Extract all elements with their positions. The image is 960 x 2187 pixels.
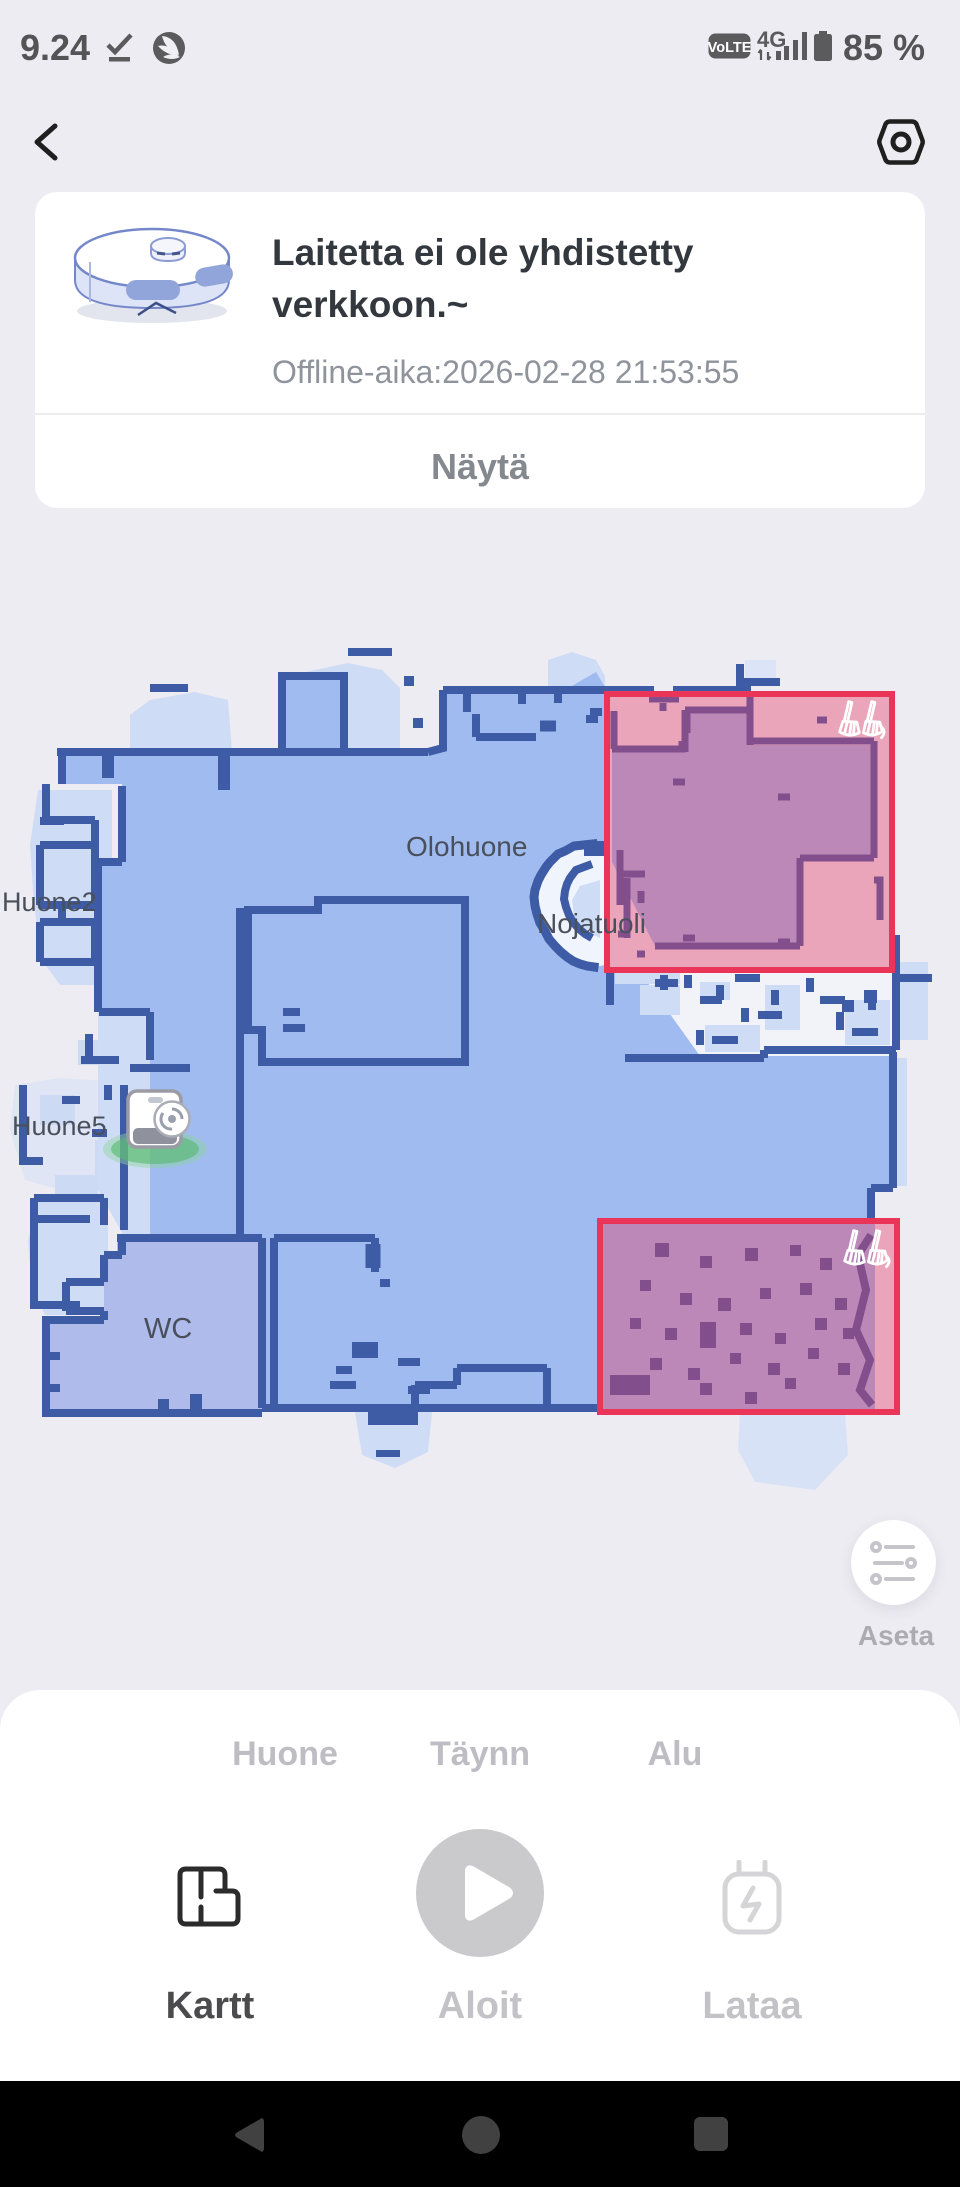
svg-text:Olohuone: Olohuone bbox=[406, 831, 527, 862]
svg-text:4G: 4G bbox=[757, 28, 786, 52]
svg-text:WC: WC bbox=[144, 1313, 192, 1345]
svg-text:Huone2: Huone2 bbox=[2, 887, 97, 917]
svg-text:Huone5: Huone5 bbox=[12, 1111, 107, 1141]
svg-text:Nojatuoli: Nojatuoli bbox=[537, 908, 646, 939]
svg-text:VoLTE: VoLTE bbox=[708, 40, 751, 56]
